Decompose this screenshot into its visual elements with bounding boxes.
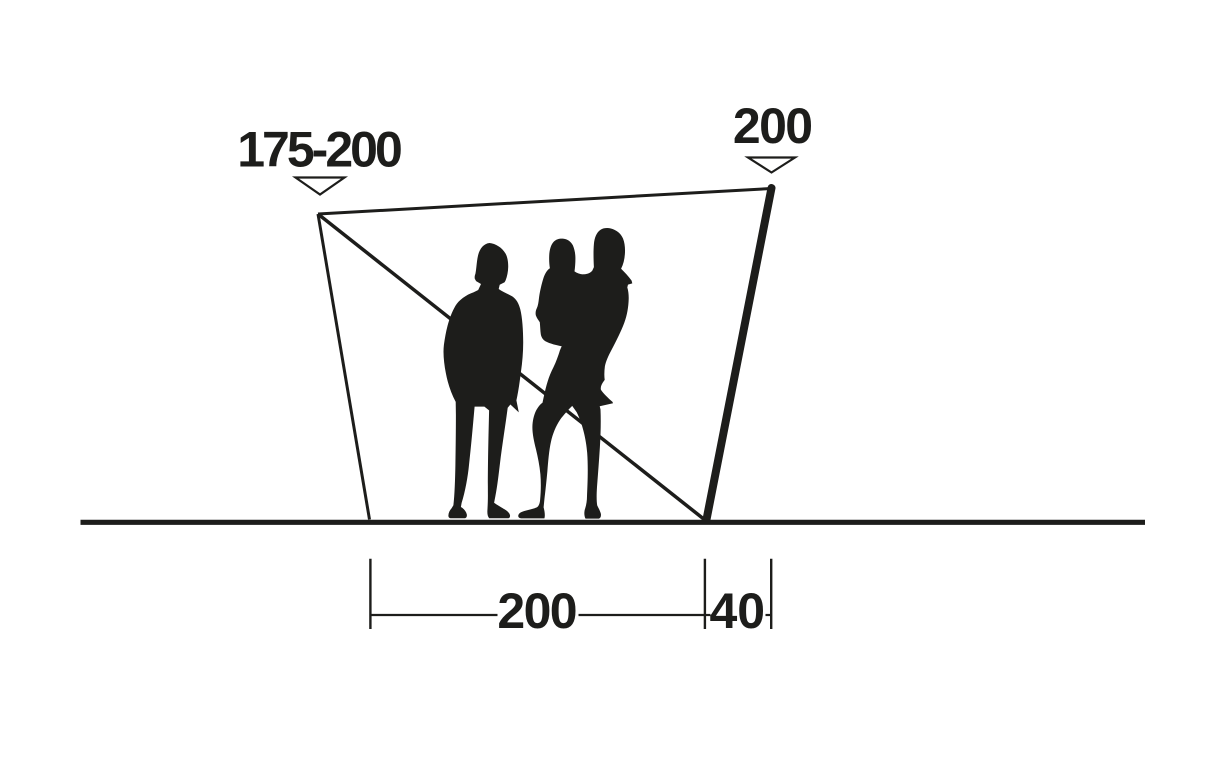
svg-text:40: 40 bbox=[709, 583, 765, 639]
svg-text:200: 200 bbox=[733, 98, 812, 154]
svg-text:175-200: 175-200 bbox=[237, 121, 401, 177]
svg-text:200: 200 bbox=[497, 583, 576, 639]
